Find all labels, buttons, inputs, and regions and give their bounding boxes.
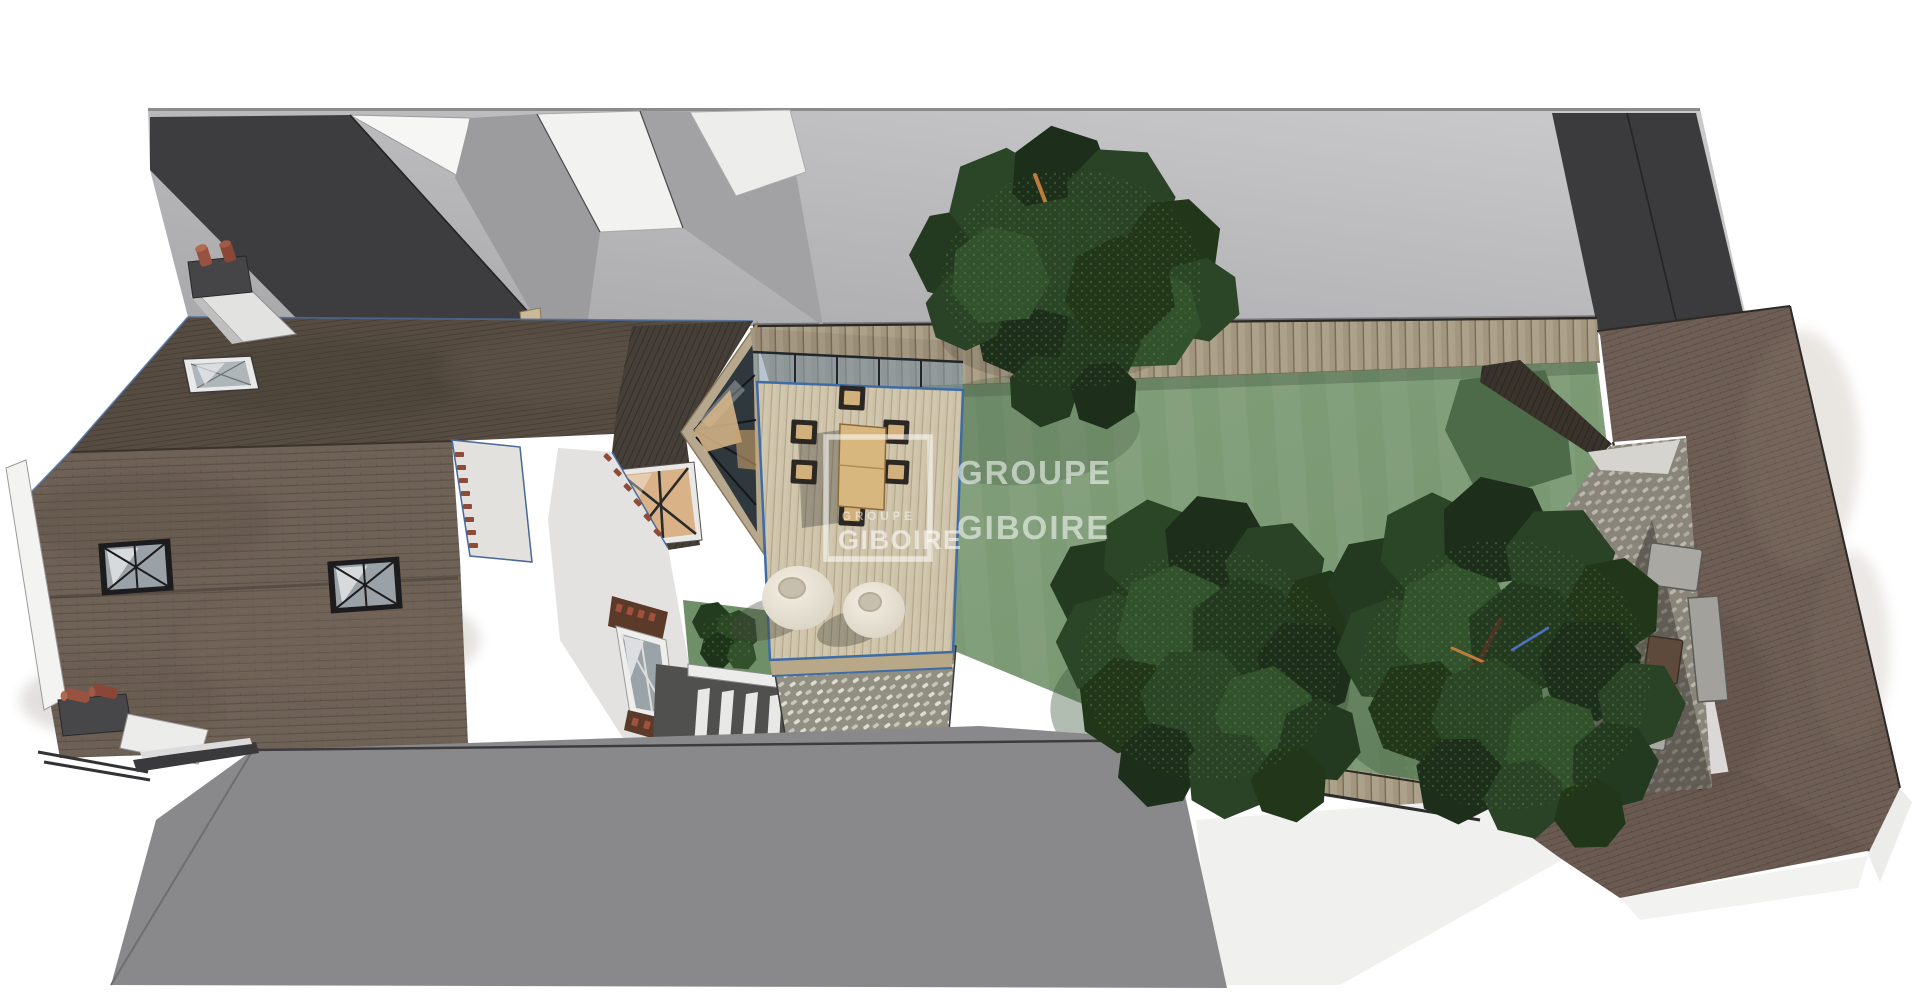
watermark-text-line2: GIBOIRE	[957, 509, 1110, 546]
foreground-roof	[111, 726, 1227, 988]
watermark-logo-text-small: GROUPE	[842, 511, 916, 523]
skylight	[183, 356, 259, 393]
chimney-cap	[188, 256, 252, 298]
chimney-cap	[58, 694, 132, 736]
render-stage: GROUPE GIBOIRE GROUPE GIBOIRE	[0, 0, 1920, 997]
watermark-text-line1: GROUPE	[957, 454, 1112, 491]
scene-svg: GROUPE GIBOIRE GROUPE GIBOIRE	[0, 0, 1920, 997]
roof-window-2	[327, 557, 402, 614]
roof-window-1	[98, 539, 173, 596]
watermark-logo-text-large: GIBOIRE	[838, 525, 963, 555]
